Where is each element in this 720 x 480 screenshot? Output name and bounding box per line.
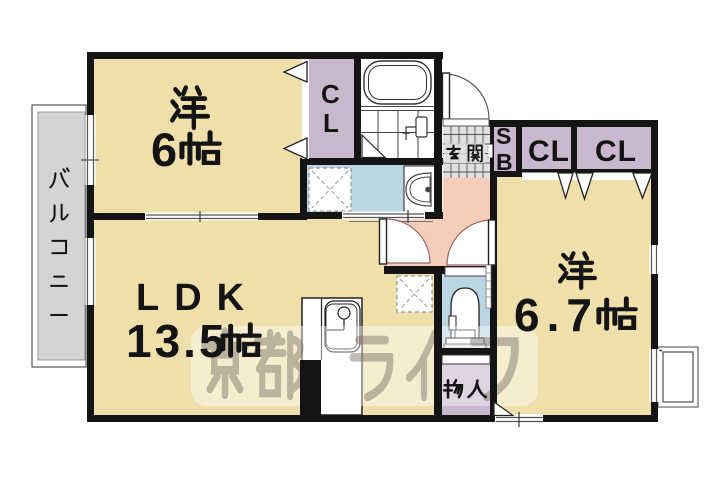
svg-text:B: B	[496, 149, 513, 175]
svg-text:6: 6	[151, 123, 177, 176]
svg-text:C: C	[321, 79, 340, 109]
svg-text:L: L	[323, 108, 339, 138]
svg-text:S: S	[496, 123, 511, 149]
svg-text:13.5: 13.5	[126, 315, 228, 367]
svg-text:CL: CL	[528, 135, 570, 168]
svg-text:LDK: LDK	[136, 277, 259, 319]
svg-text:CL: CL	[595, 135, 637, 168]
svg-text:6.7: 6.7	[514, 289, 599, 341]
